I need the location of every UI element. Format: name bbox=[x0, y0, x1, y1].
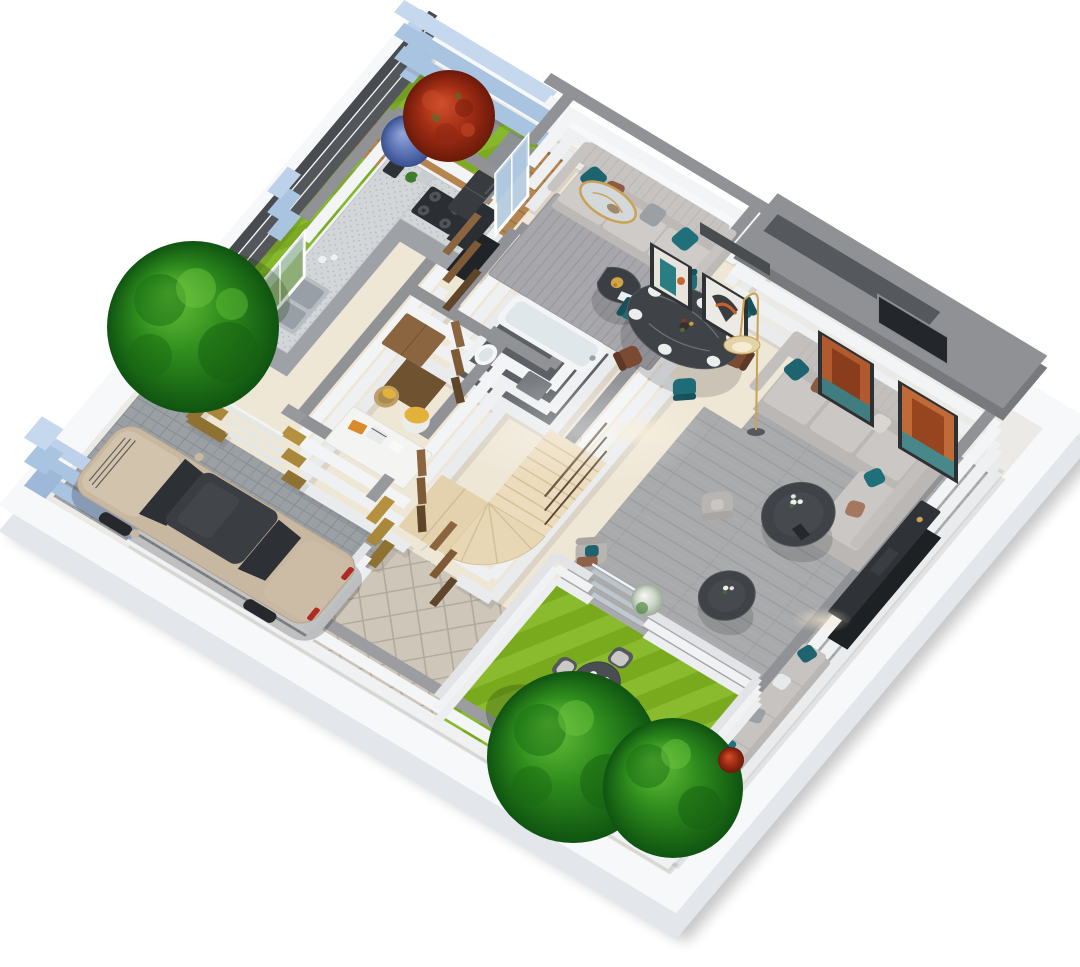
backyard-tree-2 bbox=[603, 718, 743, 858]
teal-pillow bbox=[585, 545, 599, 558]
floorplan-stage bbox=[0, 0, 1080, 967]
boundary-tree bbox=[107, 241, 279, 413]
floor-light-glow bbox=[792, 607, 852, 633]
marble-sheen bbox=[450, 375, 710, 485]
red-flowering-shrub bbox=[403, 70, 495, 162]
gate-pillar bbox=[35, 423, 53, 444]
floorplan-scene bbox=[0, 0, 1080, 967]
red-flowering-shrub-small bbox=[718, 747, 744, 773]
